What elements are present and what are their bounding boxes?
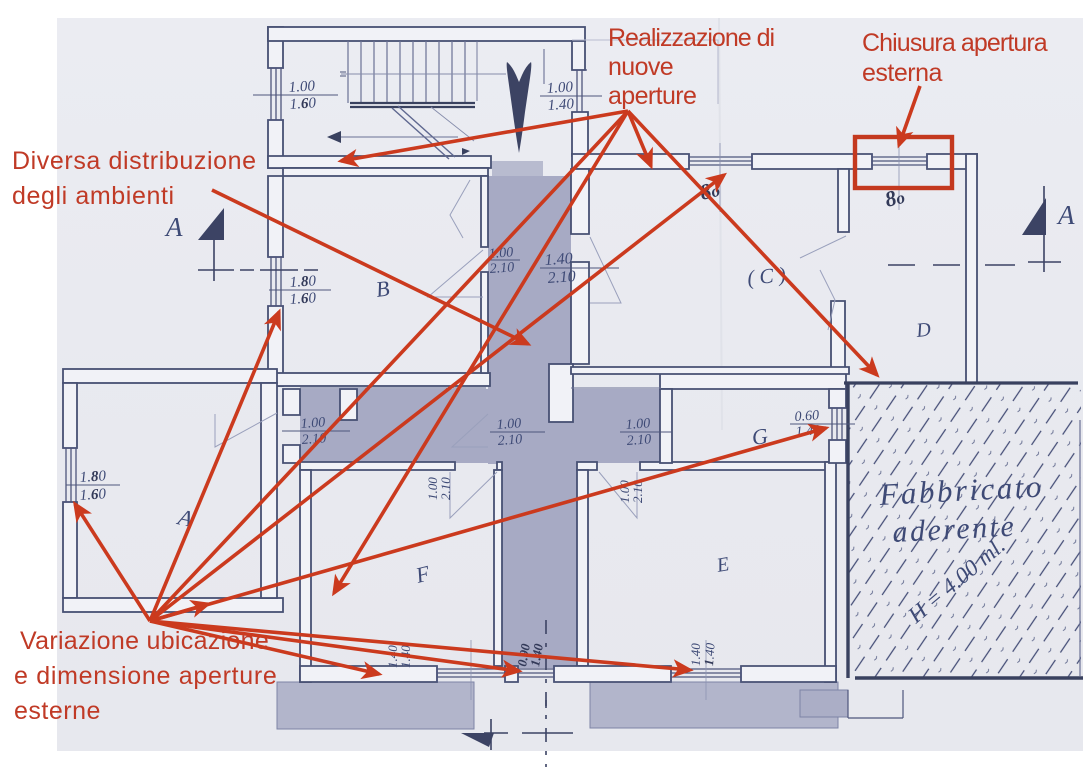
svg-text:1.40: 1.40 (547, 96, 575, 114)
svg-text:1.40: 1.40 (544, 250, 573, 269)
svg-text:Realizzazione di: Realizzazione di (608, 24, 774, 52)
svg-text:aperture: aperture (608, 82, 696, 110)
svg-text:degli ambienti: degli ambienti (12, 182, 175, 210)
svg-text:1.80: 1.80 (289, 273, 317, 291)
svg-text:D: D (914, 319, 932, 343)
svg-text:2.10: 2.10 (489, 260, 514, 277)
svg-text:2.10: 2.10 (497, 432, 522, 449)
svg-text:2.10: 2.10 (438, 477, 453, 500)
svg-text:1.00: 1.00 (288, 78, 316, 96)
svg-text:1.60: 1.60 (289, 290, 317, 308)
svg-text:Chiusura apertura: Chiusura apertura (862, 29, 1048, 57)
svg-text:esterna: esterna (862, 59, 942, 87)
svg-text:2.10: 2.10 (626, 432, 651, 449)
svg-text:A: A (1056, 200, 1075, 230)
svg-text:Diversa distribuzione: Diversa distribuzione (12, 147, 257, 175)
svg-text:1.80: 1.80 (79, 468, 107, 486)
svg-text:0.60: 0.60 (794, 408, 819, 425)
svg-text:( C ): ( C ) (746, 262, 787, 290)
svg-text:A: A (164, 212, 183, 242)
svg-text:1.00: 1.00 (625, 416, 650, 433)
svg-text:2.10: 2.10 (547, 268, 576, 287)
svg-text:1.40: 1.40 (701, 642, 718, 666)
svg-text:nuove: nuove (608, 53, 673, 81)
svg-text:1.00: 1.00 (300, 415, 325, 432)
svg-text:esterne: esterne (14, 697, 101, 725)
svg-text:1.00: 1.00 (546, 79, 574, 97)
svg-text:1.00: 1.00 (496, 416, 521, 433)
svg-text:e dimensione aperture: e dimensione aperture (14, 662, 277, 690)
svg-text:1.60: 1.60 (79, 486, 107, 504)
svg-text:1.60: 1.60 (289, 95, 317, 113)
